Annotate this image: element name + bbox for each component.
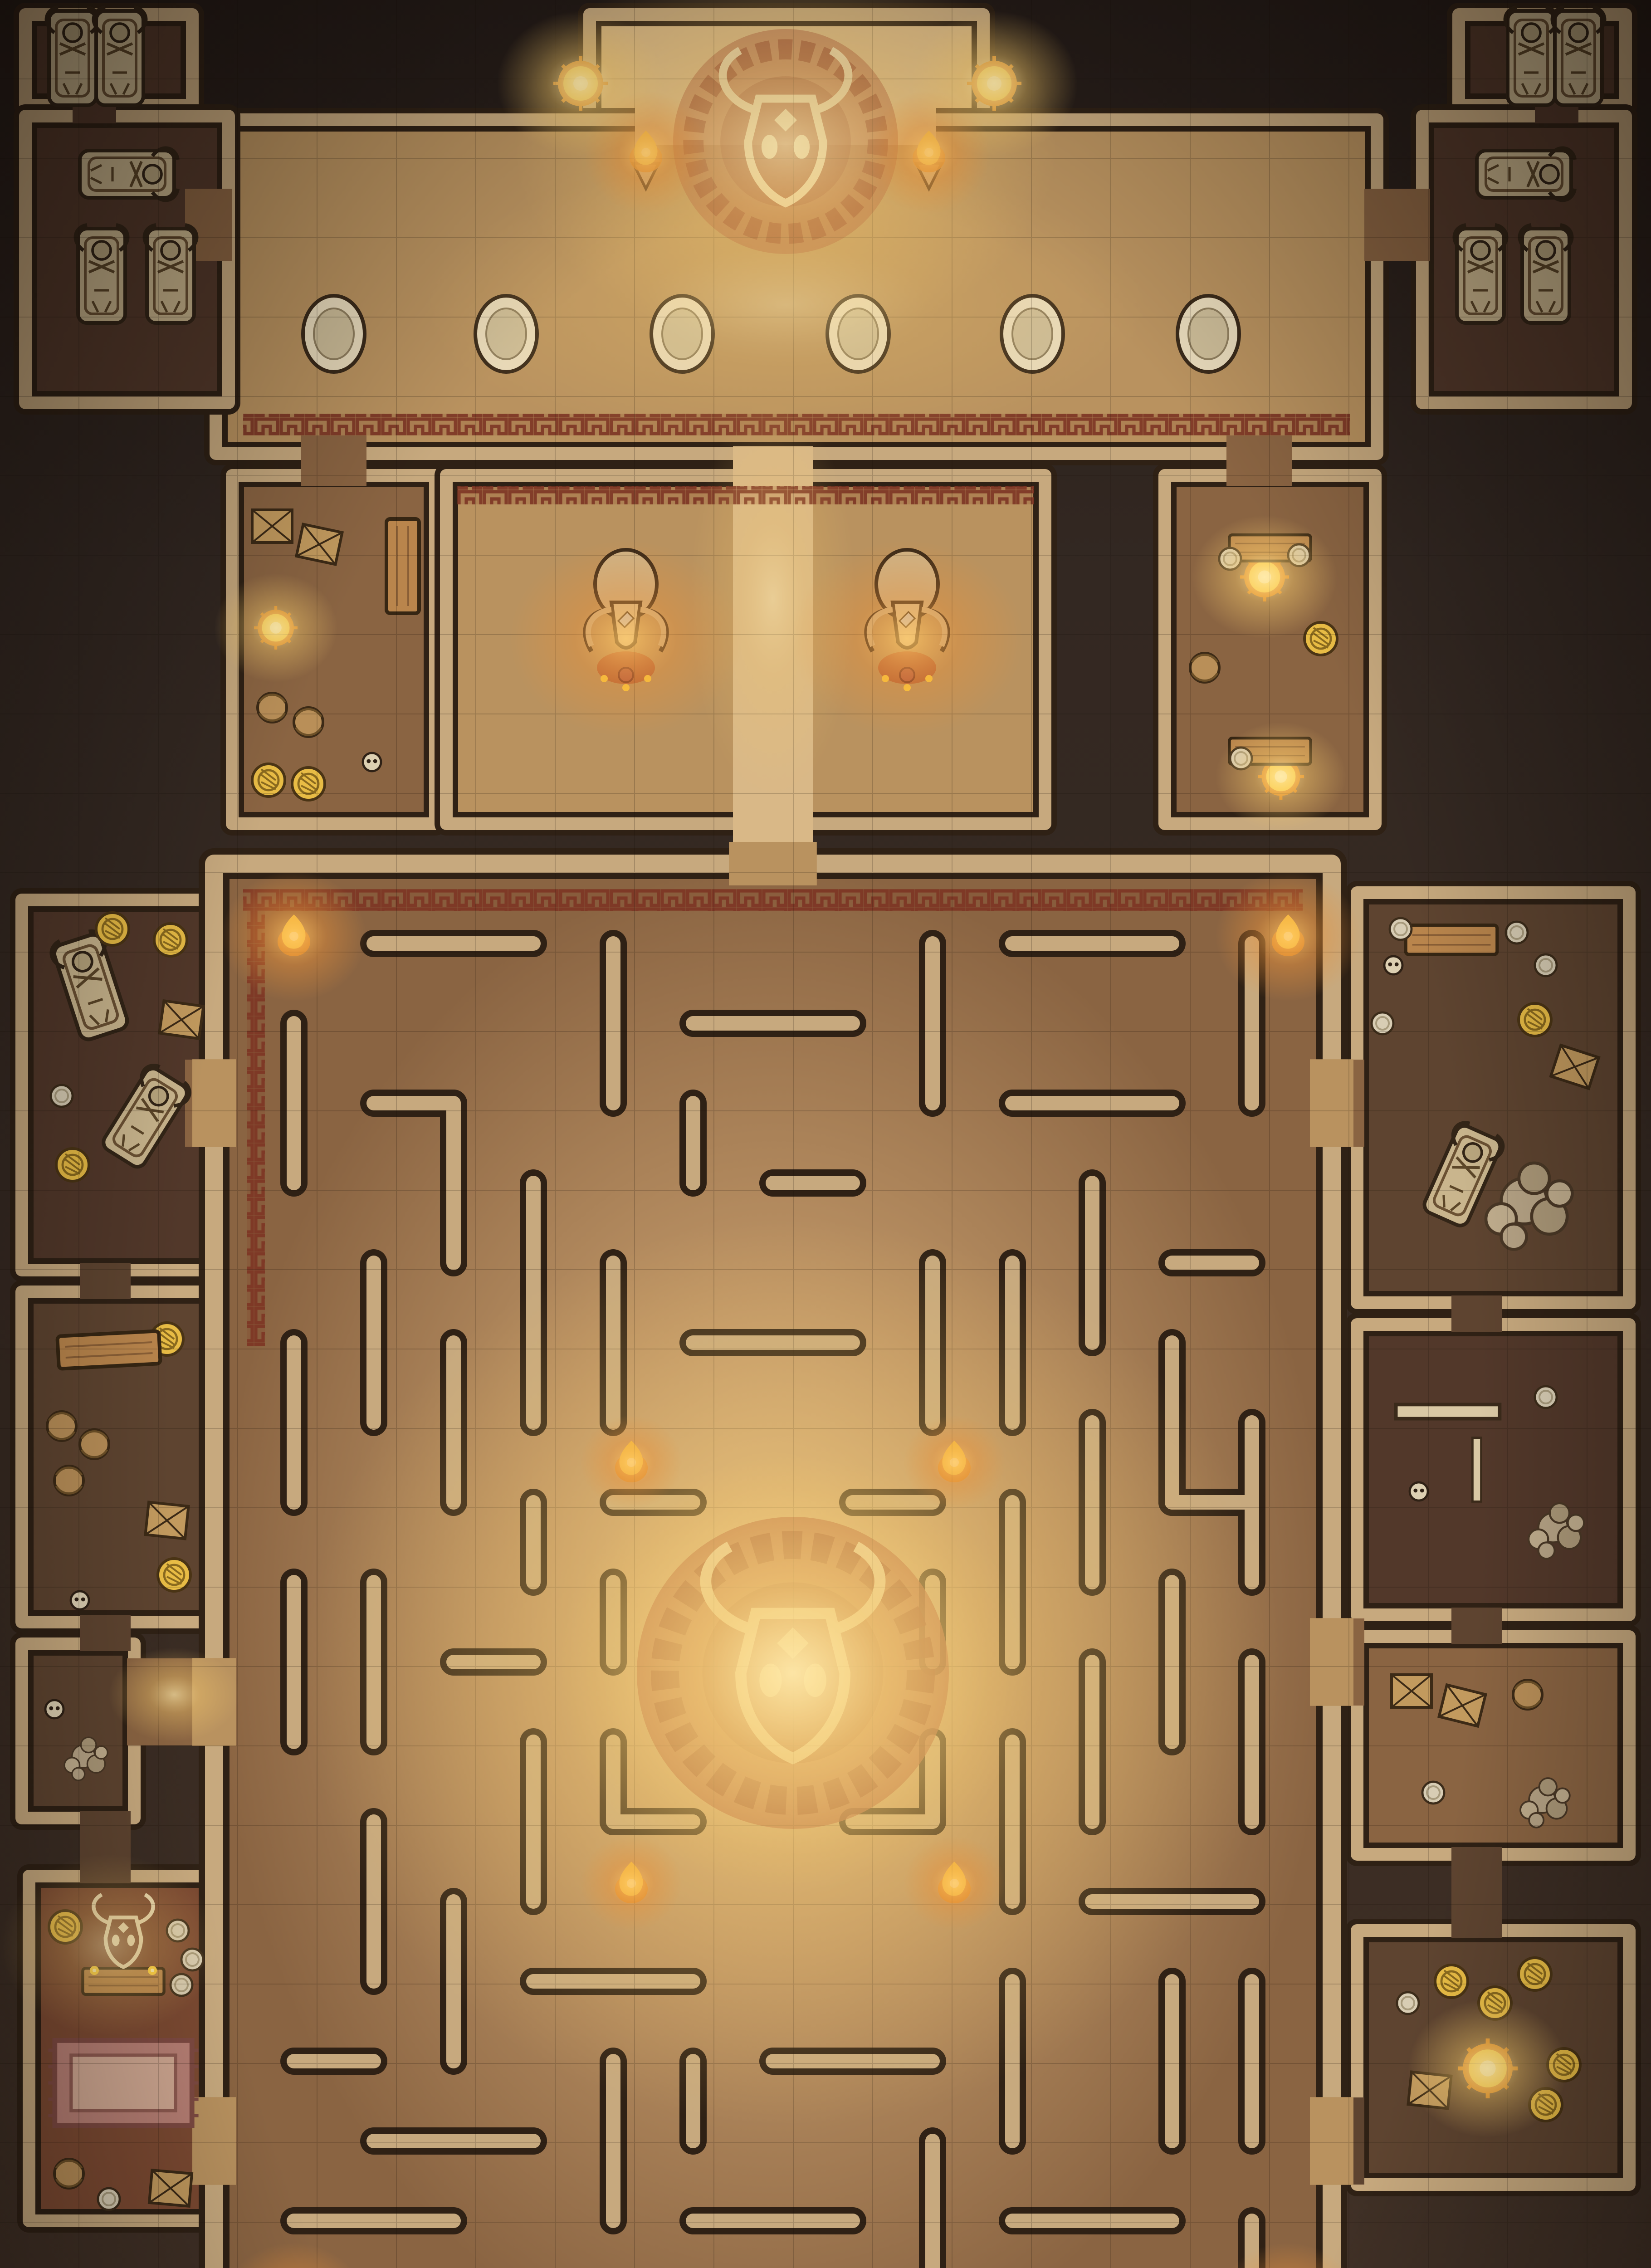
labyrinth-battle-map: PATREON | CZEPEKU — [0, 0, 1651, 2268]
vignette — [0, 0, 1651, 2268]
